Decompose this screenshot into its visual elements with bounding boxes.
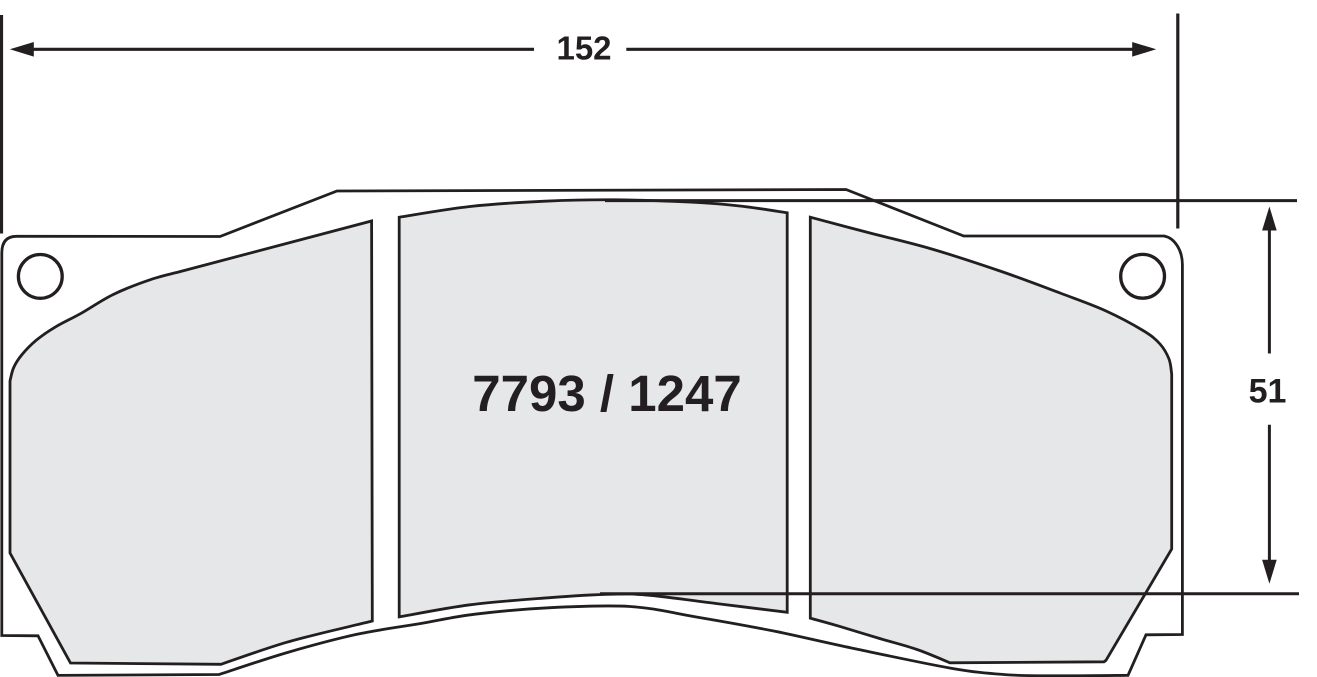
svg-text:7793 / 1247: 7793 / 1247 bbox=[472, 365, 741, 422]
svg-text:152: 152 bbox=[556, 30, 611, 67]
svg-text:51: 51 bbox=[1249, 372, 1287, 410]
